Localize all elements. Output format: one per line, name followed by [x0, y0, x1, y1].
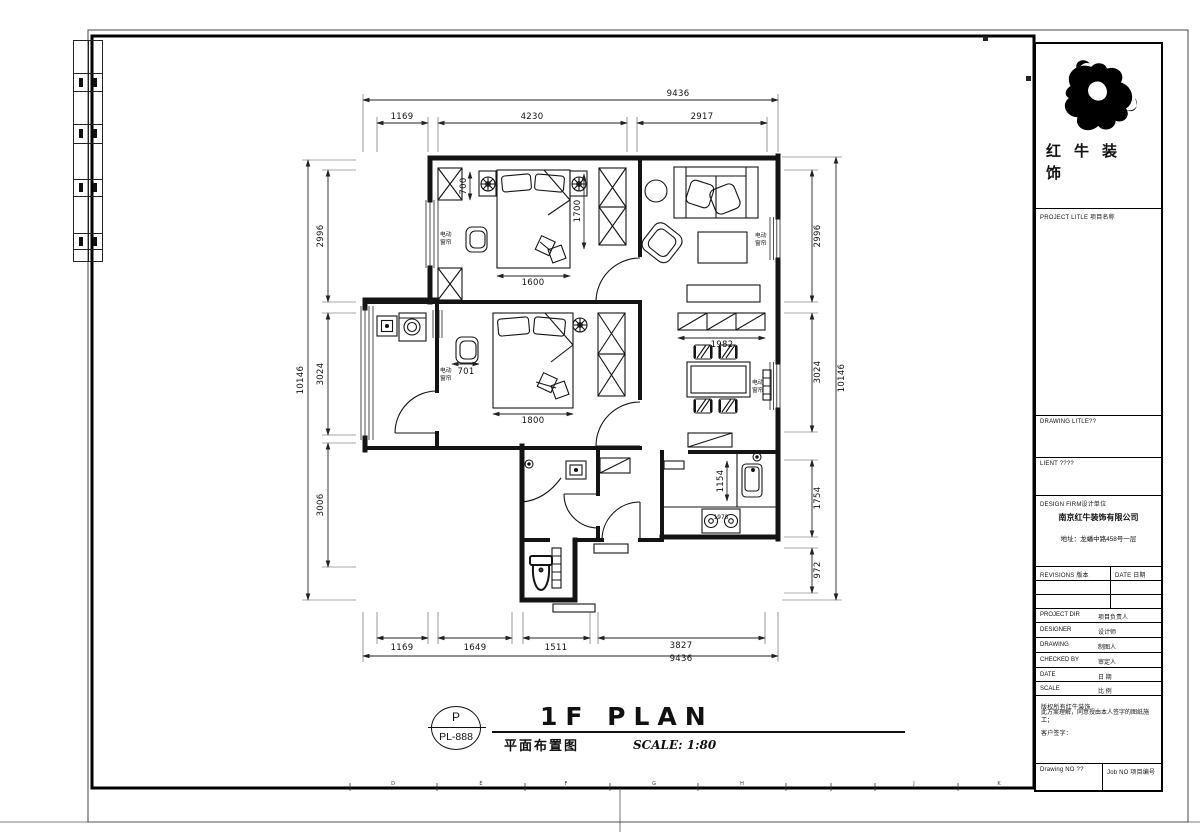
dim-right-a: 2996 [813, 225, 823, 248]
extension-lines [302, 94, 842, 662]
design-firm-label: DESIGN FIRM设计单位 [1040, 499, 1106, 508]
bed-double [493, 313, 573, 408]
curtain-label: 电动 [755, 231, 767, 239]
marker-number: PL-888 [432, 731, 480, 743]
cabinet [688, 433, 732, 447]
table-row: SCALE 比 例 [1036, 682, 1161, 696]
shoe-cabinet [600, 458, 630, 473]
dim-bottom-b: 1649 [464, 643, 487, 653]
dim-bed1-top: 700 [459, 177, 469, 194]
dim-top-c: 2917 [691, 112, 714, 122]
curtain-label: 电动 [752, 378, 764, 386]
floor-drain-icon [753, 453, 761, 461]
fold-mark-right [1026, 76, 1031, 81]
logo-text-line1: 红牛装 [1046, 140, 1130, 161]
curtain-label: 窗帘 [440, 374, 452, 382]
chair [466, 227, 487, 252]
curtain-labels: 电动 窗帘 电动 窗帘 电动 窗帘 电动 窗帘 [440, 230, 767, 394]
fold-mark-top [983, 36, 988, 41]
curtain-label: 窗帘 [755, 239, 767, 247]
balcony [377, 313, 426, 341]
table-row: DESIGNER 设计师 [1036, 623, 1161, 638]
living-room [639, 167, 765, 330]
ceiling-lamp-icon [573, 318, 587, 332]
curtain-label: 窗帘 [752, 386, 764, 394]
dim-bed1-width: 1600 [522, 278, 545, 288]
title-block: 红牛装 饰 PROJECT LITLE 项目名称 DRAWING LITLE??… [1034, 42, 1163, 792]
marker-letter: P [432, 710, 480, 724]
drawing-title-label: DRAWING LITLE?? [1040, 419, 1096, 425]
door-balcony [395, 391, 437, 433]
dim-bed2-chair: 701 [457, 367, 474, 377]
dining-chair [694, 345, 712, 359]
grid-letter: K [997, 781, 1001, 787]
project-title-label: PROJECT LITLE 项目名称 [1040, 212, 1115, 221]
plan-title-zh: 平面布置图 [504, 735, 579, 754]
dining-chair [719, 399, 737, 413]
dim-bottom-c: 1511 [545, 643, 568, 653]
towel-radiator-icon [552, 548, 561, 588]
grid-letter: G [652, 781, 656, 787]
dim-right-c: 1754 [813, 487, 823, 510]
dim-left-a: 2996 [316, 225, 326, 248]
stove-icon [702, 509, 740, 533]
door-entry [602, 502, 640, 540]
threshold [664, 461, 684, 469]
grid-letter: F [565, 781, 568, 787]
row-label-en: DRAWING [1040, 642, 1069, 648]
row-label-en: CHECKED BY [1040, 657, 1079, 663]
row-label-en: SCALE [1040, 686, 1060, 692]
coffee-table [698, 232, 747, 263]
row-label-en: DESIGNER [1040, 627, 1071, 633]
design-firm-name: 南京红牛装饰有限公司 [1036, 512, 1161, 523]
drawing-number-marker: P PL-888 [431, 706, 481, 750]
side-table [645, 180, 667, 202]
armchair [639, 220, 685, 266]
wardrobe-icon [598, 313, 625, 354]
row-label-en: DATE [1040, 672, 1056, 678]
row-label-zh: 设计师 [1098, 627, 1116, 636]
row-label-zh: 制图人 [1098, 642, 1116, 651]
wardrobe-icon [598, 354, 625, 396]
door-bedroom2 [596, 402, 640, 446]
row-label-zh: 比 例 [1098, 686, 1112, 695]
date-column-label: DATE 日期 [1115, 570, 1146, 579]
design-firm-address: 地址：龙蟠中路458号一层 [1036, 533, 1161, 543]
shower-screen [522, 478, 561, 502]
table-row: CHECKED BY 审定人 [1036, 653, 1161, 668]
floor-drain-icon [525, 460, 533, 468]
ceiling-lamp-icon [481, 177, 495, 191]
client-label: LIENT ???? [1040, 461, 1074, 467]
toilet-icon [530, 556, 552, 590]
row-label-zh: 日 期 [1098, 672, 1112, 681]
sink-icon [742, 464, 762, 497]
door-bedroom1 [596, 258, 640, 302]
drawing-no-label: Drawing NO ?? [1040, 767, 1084, 773]
dim-top-b: 4230 [521, 112, 544, 122]
bathroom [522, 460, 595, 612]
dim-top-overall: 9436 [667, 89, 690, 99]
cad-sheet: D E F G H J K [0, 0, 1200, 832]
sideboard [678, 313, 765, 330]
wardrobe-icon [599, 168, 626, 207]
dim-bed1-side: 1700 [573, 200, 583, 223]
dining-chair [694, 399, 712, 413]
dim-left-b: 3024 [316, 363, 326, 386]
wardrobe-icon [438, 268, 462, 300]
table-row: DRAWING 制图人 [1036, 638, 1161, 653]
plan-title: 1F PLAN [540, 702, 714, 731]
table-row: PROJECT DIR 项目负责人 [1036, 608, 1161, 623]
grid-letter: H [740, 781, 744, 787]
curtain-label: 电动 [440, 366, 452, 374]
title-underline [492, 731, 905, 733]
dim-bottom-d: 3827 [670, 641, 693, 651]
stove-label: 1978 [714, 515, 729, 521]
dim-sink: 1154 [716, 470, 726, 493]
dim-right-d: 972 [813, 561, 823, 578]
marker-divider [428, 727, 486, 728]
rednow-bull-logo [1054, 60, 1146, 138]
wardrobe-icon [599, 207, 626, 245]
revisions-label: REVISIONS 版本 [1040, 570, 1089, 579]
dim-left-overall: 10146 [296, 366, 306, 395]
bed-double [497, 170, 570, 268]
shower-drain-icon [566, 461, 586, 479]
grid-letter: E [479, 781, 482, 787]
dim-left-c: 3006 [316, 494, 326, 517]
grid-letter: D [391, 781, 395, 787]
table-row: DATE 日 期 [1036, 668, 1161, 682]
sofa [674, 167, 758, 218]
agreement-note: 此方案理解，同意授由本人签字的图纸施工； [1041, 710, 1159, 726]
dim-sideboard: 1982 [711, 340, 734, 350]
dim-top-a: 1169 [391, 112, 414, 122]
dining-table [687, 362, 750, 397]
tv-bench [687, 285, 760, 302]
job-no-label: Job NO 项目编号 [1107, 767, 1155, 776]
row-label-en: PROJECT DIR [1040, 612, 1080, 618]
client-signature-label: 客户签字： [1041, 728, 1072, 737]
washing-machine-icon [399, 313, 426, 341]
floor-drain-icon [377, 316, 397, 336]
chair [456, 337, 478, 363]
dim-bed2-width: 1800 [522, 416, 545, 426]
dim-bottom-overall: 9436 [670, 654, 693, 664]
dimension-labels: 9436 1169 4230 2917 10146 2996 3024 3006… [296, 89, 847, 664]
bedroom2 [456, 313, 625, 408]
logo-text-line2: 饰 [1046, 162, 1074, 183]
entry-step [594, 544, 628, 553]
row-label-zh: 项目负责人 [1098, 612, 1128, 621]
sheet-index-strip [73, 40, 103, 262]
grid-letter: J [912, 781, 914, 787]
outdoor-step [553, 604, 595, 612]
door-bathroom [564, 494, 598, 528]
dim-bottom-a: 1169 [391, 643, 414, 653]
dim-right-overall: 10146 [837, 364, 847, 393]
row-label-zh: 审定人 [1098, 657, 1116, 666]
dim-right-b: 3024 [813, 361, 823, 384]
curtain-label: 窗帘 [440, 238, 452, 246]
dining-room [687, 345, 771, 447]
plan-scale: SCALE: 1:80 [633, 738, 716, 752]
curtain-label: 电动 [440, 230, 452, 238]
